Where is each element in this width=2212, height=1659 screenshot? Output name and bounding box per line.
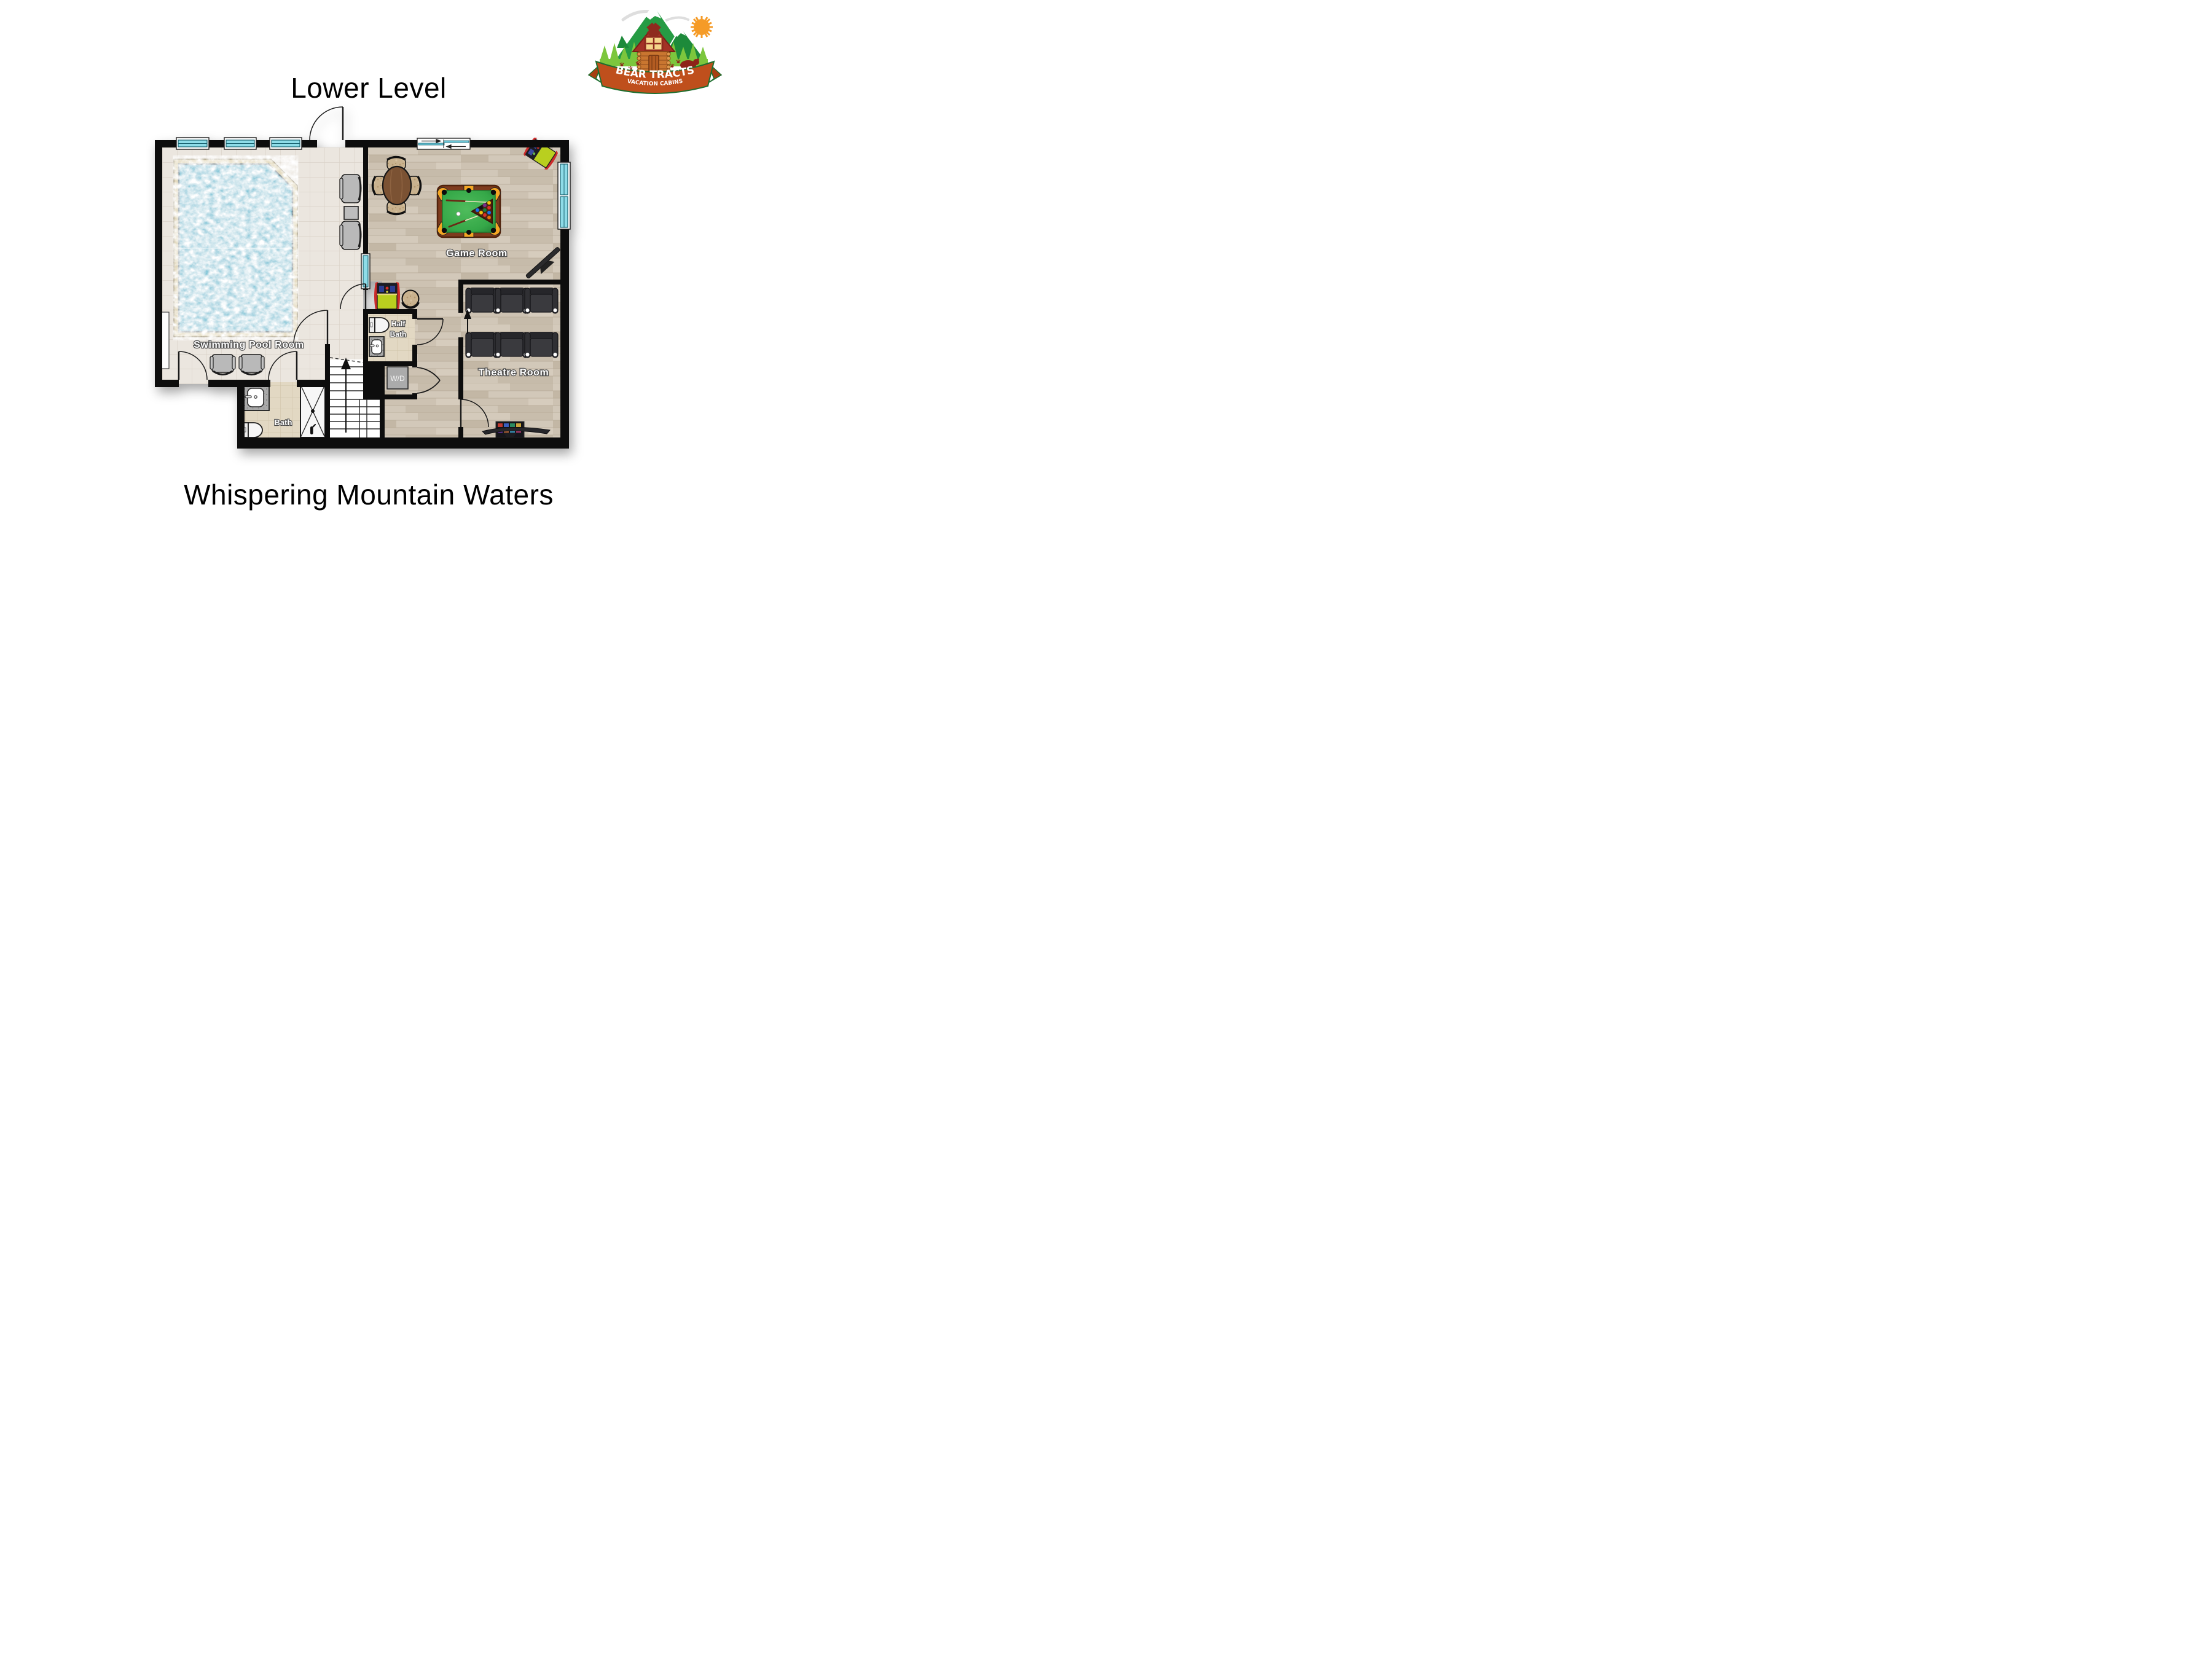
lounge-chair <box>340 175 361 203</box>
side-table <box>344 206 358 219</box>
recliner-row <box>466 332 558 358</box>
pool-chair <box>210 355 235 375</box>
lounge-chair <box>340 221 361 249</box>
theatre-room-label: Theatre Room <box>479 367 549 378</box>
bath-sink <box>243 385 269 410</box>
arcade-machine <box>374 282 400 310</box>
half-bath-label-1: Half <box>391 320 406 328</box>
dining-table <box>383 167 411 205</box>
recliner-seat <box>466 332 499 358</box>
door-pool-entry <box>310 107 343 140</box>
pool-table <box>437 186 500 237</box>
page: Lower Level Whispering Mountain Waters <box>0 0 737 553</box>
pool-chair <box>239 355 264 375</box>
window <box>270 138 302 149</box>
washer-dryer-label: W/D <box>390 374 405 383</box>
round-side-table <box>402 291 419 308</box>
recliner-seat <box>525 288 558 313</box>
bath-shower <box>300 385 325 437</box>
half-bath-label-2: Bath <box>390 330 407 339</box>
bath-label: Bath <box>275 418 292 427</box>
sliding-glass-door <box>417 138 470 149</box>
recliner-row <box>466 288 558 313</box>
window <box>176 138 209 149</box>
recliner-seat <box>466 288 499 313</box>
recliner-seat <box>495 332 528 358</box>
pool-room-label: Swimming Pool Room <box>194 340 304 350</box>
floor-plan: W/D <box>0 0 737 553</box>
game-room-label: Game Room <box>446 248 508 259</box>
window <box>558 162 570 229</box>
cue-ball <box>457 212 460 216</box>
washer-dryer: W/D <box>387 367 408 389</box>
plan-body: W/D <box>155 107 570 449</box>
window <box>224 138 256 149</box>
recliner-seat <box>495 288 528 313</box>
half-bath-toilet <box>369 318 389 332</box>
swimming-pool <box>174 159 297 337</box>
recliner-seat <box>525 332 558 358</box>
bath-toilet <box>243 423 262 437</box>
half-bath-sink <box>369 337 384 356</box>
